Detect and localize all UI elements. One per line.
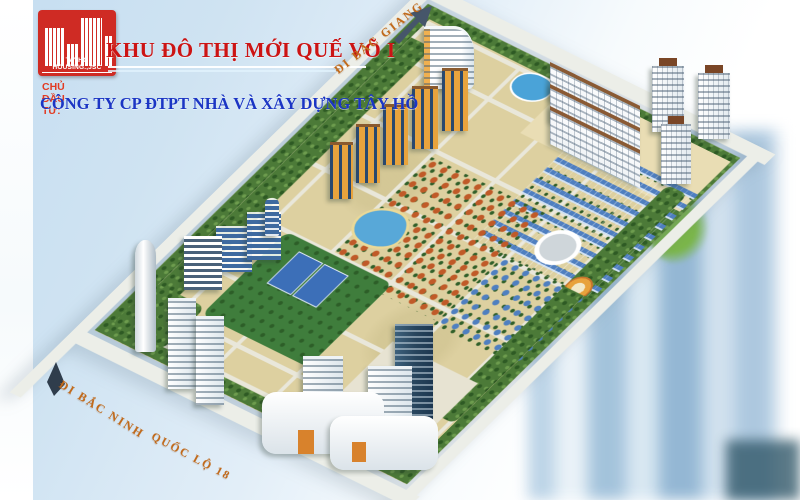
road-label-bac-ninh: ĐI BẮC NINH (56, 377, 147, 442)
orange-apartment-tower (442, 68, 468, 131)
logo-company-name: TAYHO HOUSING.,JSC (42, 57, 112, 73)
background-left-strip (0, 0, 33, 500)
apartment-point-tower (661, 124, 691, 184)
orange-apartment-tower (356, 124, 380, 183)
residential-midrise (168, 298, 196, 389)
orange-apartment-tower (330, 142, 353, 199)
title-underline (108, 70, 336, 72)
residential-midrise (196, 316, 224, 405)
landmark-cylinder-tower (135, 240, 156, 352)
road-label-quoc-lo-18: QUỐC LỘ 18 (149, 431, 233, 483)
masterplan-poster: TAYHO HOUSING.,JSC KHU ĐÔ THỊ MỚI QUẾ VÕ… (0, 0, 800, 500)
background-city-dark-block (726, 440, 800, 500)
podium-accent (298, 430, 314, 454)
tayho-housing-logo: TAYHO HOUSING.,JSC (38, 10, 116, 76)
podium-accent (352, 442, 366, 462)
title-underline (108, 66, 366, 68)
apartment-point-tower (698, 73, 730, 139)
office-cylinder (265, 198, 279, 236)
investor-name: CÔNG TY CP ĐTPT NHÀ VÀ XÂY DỰNG TÂY HỒ (40, 94, 418, 114)
striped-office-tower (184, 236, 222, 290)
retail-podium (330, 416, 438, 470)
